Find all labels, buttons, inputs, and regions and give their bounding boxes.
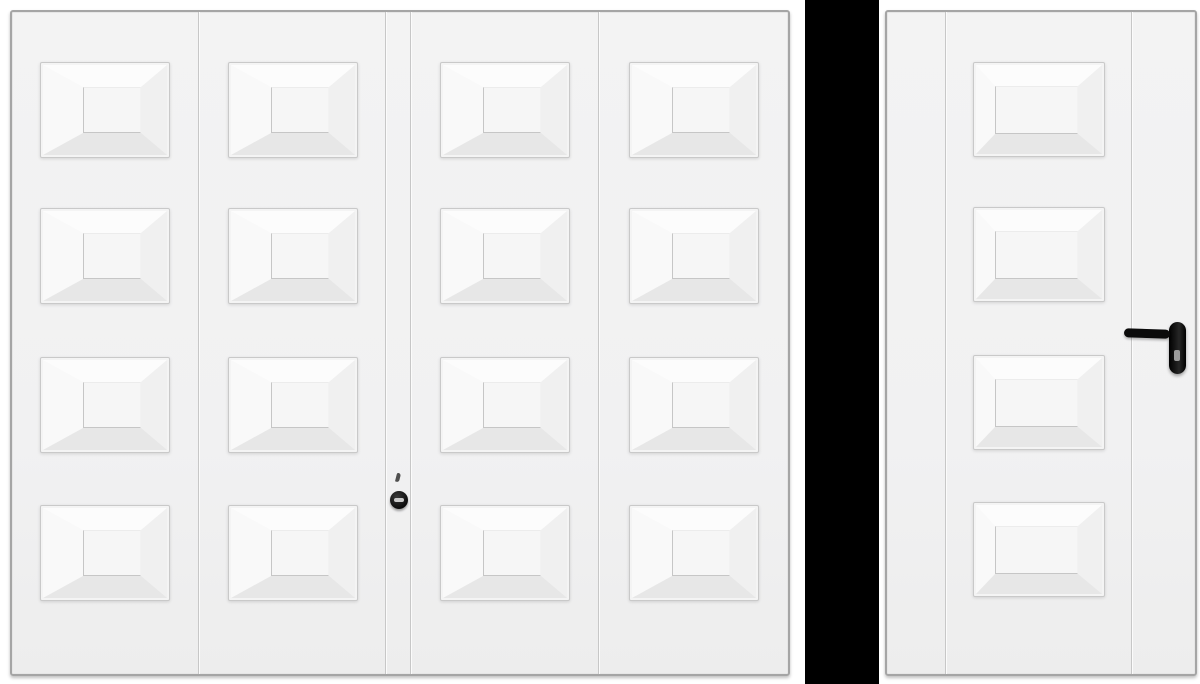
raised-panel	[440, 357, 570, 453]
raised-panel	[228, 208, 358, 304]
lock-keyhole-mark	[394, 473, 400, 483]
panel-bevel	[443, 65, 567, 155]
panel-bevel	[43, 360, 167, 450]
panel-inner	[83, 530, 141, 576]
panel-inner	[995, 379, 1078, 427]
raised-panel	[40, 62, 170, 158]
handle-lever	[1124, 328, 1170, 339]
raised-panel	[973, 207, 1105, 302]
panel-bevel	[632, 65, 756, 155]
panel-inner	[483, 382, 541, 428]
panel-inner	[483, 233, 541, 279]
raised-panel	[40, 357, 170, 453]
garage-door-section-1	[12, 12, 198, 674]
panel-inner	[995, 86, 1078, 134]
raised-panel	[440, 62, 570, 158]
panel-bevel	[976, 358, 1102, 447]
panel-bevel	[976, 65, 1102, 154]
panel-bevel	[43, 508, 167, 598]
raised-panel	[40, 208, 170, 304]
side-door	[885, 10, 1197, 676]
garage-door-center-stile	[387, 12, 410, 674]
panel-bevel	[632, 360, 756, 450]
garage-door-section-3	[412, 12, 598, 674]
panel-bevel	[43, 211, 167, 301]
side-door-left-stile	[887, 12, 945, 674]
panel-inner	[672, 382, 730, 428]
raised-panel	[228, 505, 358, 601]
garage-door-section-4	[600, 12, 788, 674]
garage-door	[10, 10, 790, 676]
panel-bevel	[43, 65, 167, 155]
panel-inner	[271, 233, 329, 279]
product-image-canvas	[0, 0, 1200, 684]
panel-bevel	[443, 360, 567, 450]
raised-panel	[629, 208, 759, 304]
garage-door-section-2	[200, 12, 385, 674]
panel-inner	[672, 530, 730, 576]
panel-inner	[83, 87, 141, 133]
panel-inner	[995, 526, 1078, 574]
panel-bevel	[632, 211, 756, 301]
side-door-right-stile	[1133, 12, 1195, 674]
panel-inner	[483, 530, 541, 576]
raised-panel	[973, 355, 1105, 450]
handle-backplate	[1169, 322, 1186, 374]
image-divider	[805, 0, 879, 684]
panel-bevel	[443, 211, 567, 301]
panel-bevel	[976, 210, 1102, 299]
raised-panel	[228, 357, 358, 453]
panel-inner	[672, 87, 730, 133]
panel-bevel	[632, 508, 756, 598]
panel-bevel	[443, 508, 567, 598]
panel-inner	[271, 530, 329, 576]
lock-handle-slot	[394, 498, 404, 502]
panel-bevel	[231, 211, 355, 301]
raised-panel	[629, 357, 759, 453]
panel-inner	[271, 87, 329, 133]
panel-inner	[672, 233, 730, 279]
panel-bevel	[231, 360, 355, 450]
panel-inner	[83, 233, 141, 279]
panel-inner	[83, 382, 141, 428]
panel-inner	[995, 231, 1078, 279]
handle-keyhole	[1174, 350, 1180, 361]
panel-bevel	[976, 505, 1102, 594]
raised-panel	[629, 505, 759, 601]
raised-panel	[440, 208, 570, 304]
panel-bevel	[231, 508, 355, 598]
panel-bevel	[231, 65, 355, 155]
raised-panel	[973, 502, 1105, 597]
side-door-panel-column	[947, 12, 1131, 674]
round-lock-handle	[390, 491, 408, 509]
panel-inner	[483, 87, 541, 133]
raised-panel	[973, 62, 1105, 157]
panel-inner	[271, 382, 329, 428]
raised-panel	[440, 505, 570, 601]
raised-panel	[40, 505, 170, 601]
raised-panel	[629, 62, 759, 158]
raised-panel	[228, 62, 358, 158]
